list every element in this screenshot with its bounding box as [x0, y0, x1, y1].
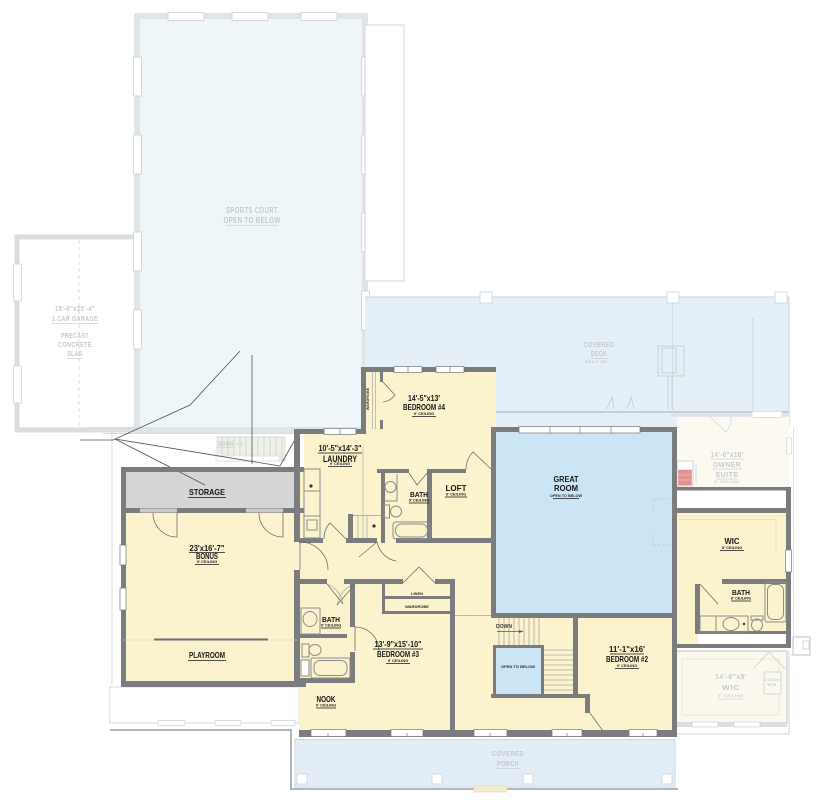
svg-text:DOWN: DOWN — [496, 624, 512, 630]
svg-text:WARDROBE: WARDROBE — [405, 604, 429, 609]
svg-text:14'-6"x8': 14'-6"x8' — [715, 674, 747, 681]
svg-text:9' CEILING: 9' CEILING — [321, 623, 342, 628]
svg-text:SUITE: SUITE — [716, 470, 739, 479]
svg-text:OPEN TO BELOW: OPEN TO BELOW — [550, 494, 583, 498]
svg-text:8' CEILING: 8' CEILING — [722, 545, 743, 550]
svg-text:OWNER: OWNER — [713, 460, 741, 469]
svg-text:10'-5"x14'-3": 10'-5"x14'-3" — [319, 444, 362, 453]
svg-text:WIC: WIC — [722, 683, 740, 692]
svg-text:BUILT UP: BUILT UP — [585, 359, 607, 364]
svg-text:OPEN TO BELOW: OPEN TO BELOW — [501, 664, 535, 669]
svg-text:COVERED: COVERED — [584, 340, 615, 349]
svg-text:CONCRETE: CONCRETE — [58, 340, 92, 349]
svg-text:OPEN TO BELOW: OPEN TO BELOW — [224, 216, 281, 225]
svg-text:SPORTS COURT: SPORTS COURT — [226, 206, 278, 215]
svg-text:13'-9"x15'-10": 13'-9"x15'-10" — [375, 640, 422, 649]
svg-text:9' CEILING: 9' CEILING — [446, 492, 467, 497]
svg-text:PLAYROOM: PLAYROOM — [189, 651, 225, 660]
svg-text:LINEN: LINEN — [411, 591, 423, 596]
svg-text:23'x16'-7": 23'x16'-7" — [190, 544, 225, 553]
svg-text:9' CEILING: 9' CEILING — [617, 663, 638, 668]
svg-text:9' CEILING: 9' CEILING — [330, 461, 351, 466]
svg-text:9' CEILING: 9' CEILING — [414, 411, 435, 416]
svg-text:9' CEILING: 9' CEILING — [197, 559, 218, 564]
svg-text:W/D: W/D — [767, 682, 776, 687]
svg-text:15'-6"x25'-4": 15'-6"x25'-4" — [55, 304, 95, 313]
svg-text:8' CEILING: 8' CEILING — [718, 693, 744, 698]
svg-text:9' CEILING: 9' CEILING — [388, 658, 409, 663]
svg-text:PORCH: PORCH — [497, 759, 519, 768]
svg-text:PRECAST: PRECAST — [61, 331, 89, 340]
svg-text:9' CEILING: 9' CEILING — [409, 498, 430, 503]
svg-text:11'-1"x16': 11'-1"x16' — [609, 645, 645, 654]
svg-text:SLAB: SLAB — [68, 349, 83, 358]
svg-text:STORAGE: STORAGE — [189, 487, 225, 497]
svg-text:14'-6"x18': 14'-6"x18' — [711, 452, 744, 459]
svg-text:14'-5"x13': 14'-5"x13' — [408, 394, 440, 403]
svg-text:DECK: DECK — [591, 349, 607, 358]
svg-text:1 CAR GARAGE: 1 CAR GARAGE — [52, 314, 98, 323]
svg-text:9' CEILING: 9' CEILING — [316, 703, 337, 708]
svg-text:COVERED: COVERED — [492, 749, 524, 758]
svg-text:GREAT: GREAT — [554, 475, 579, 484]
svg-text:8' CEILING: 8' CEILING — [731, 596, 752, 601]
svg-text:9' CEILING: 9' CEILING — [714, 479, 740, 484]
svg-text:FACE RAISED: FACE RAISED — [694, 463, 698, 484]
svg-text:WARDROBE: WARDROBE — [366, 387, 370, 410]
svg-text:DOWN: DOWN — [219, 442, 234, 448]
svg-text:ROOM: ROOM — [554, 484, 578, 493]
